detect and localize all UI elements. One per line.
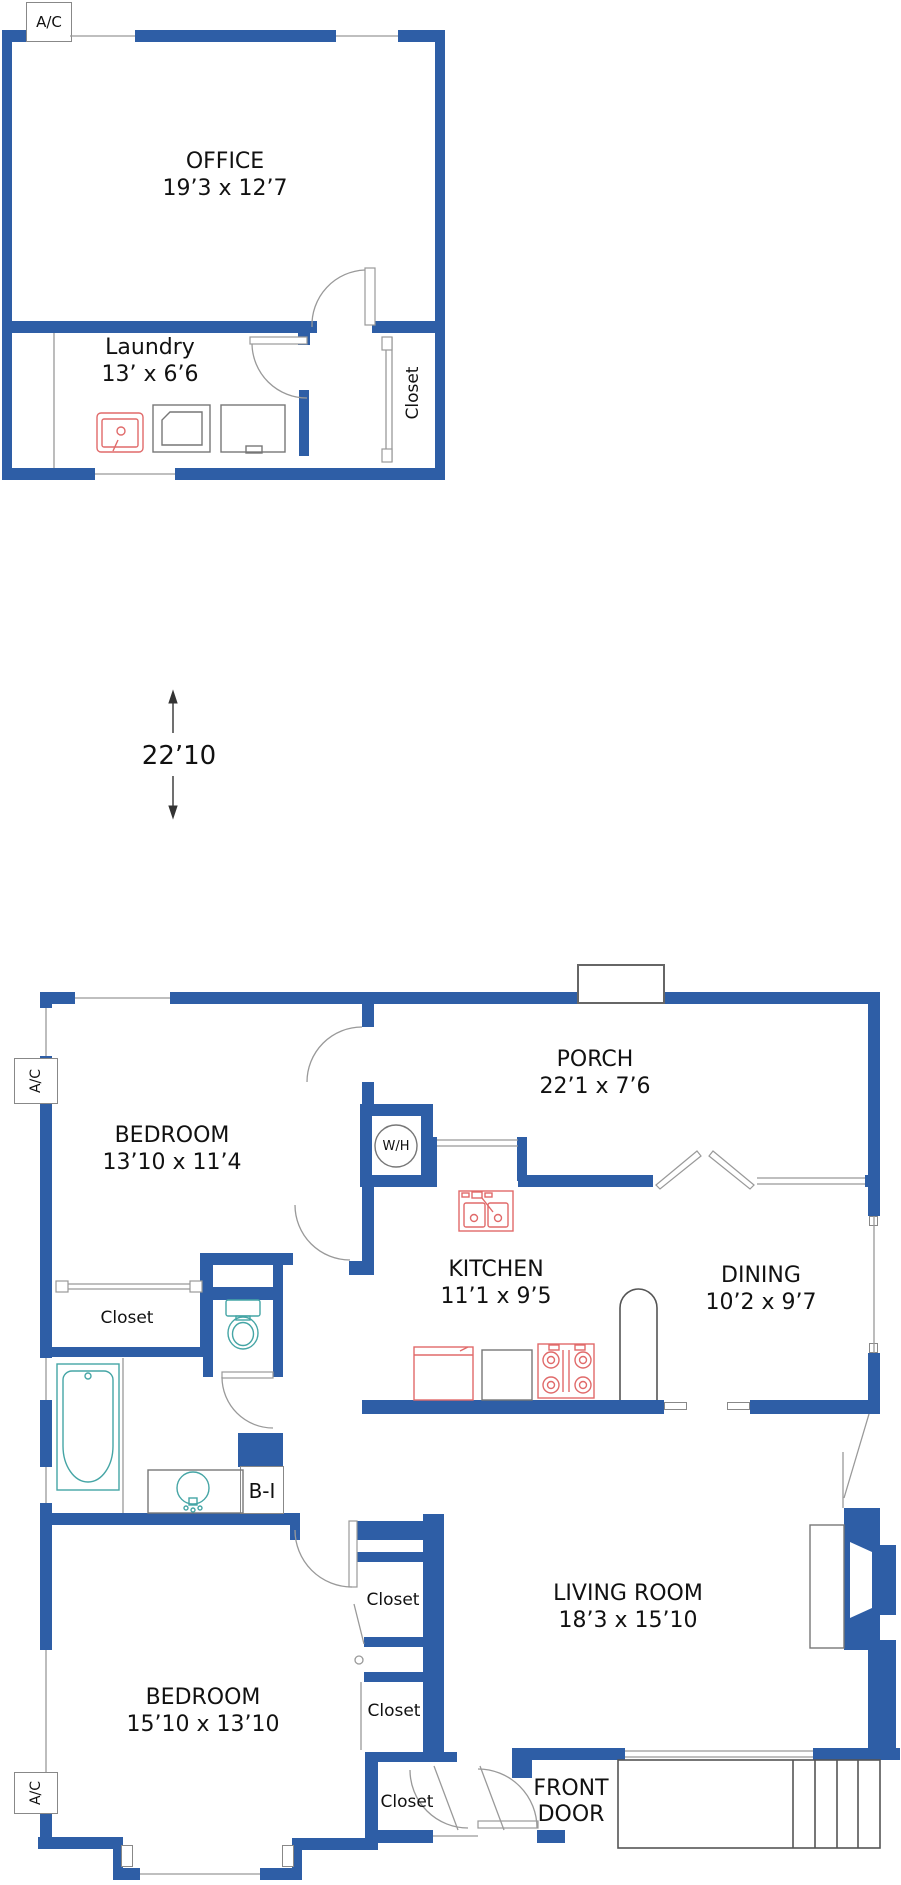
- room-name: BEDROOM: [28, 1684, 378, 1711]
- room-dims: 10’2 x 9’7: [636, 1289, 886, 1316]
- closet-sliding-door: [382, 337, 392, 462]
- room-label-laundry: Laundry 13’ x 6’6: [50, 334, 250, 389]
- room-dims: 19’3 x 12’7: [75, 175, 375, 202]
- bathroom-closet-slider: [56, 1281, 202, 1292]
- room-dims: 15’10 x 13’10: [28, 1711, 378, 1738]
- partition-lines: [54, 333, 843, 1513]
- closet-label: Closet: [367, 1792, 447, 1813]
- toilet-icon: [226, 1300, 260, 1349]
- room-dims: 13’10 x 11’4: [22, 1149, 322, 1176]
- french-doors: [656, 1151, 754, 1189]
- door-office: [312, 268, 375, 327]
- front-door-label: FRONT DOOR: [519, 1776, 623, 1828]
- bathtub-icon: [57, 1364, 119, 1490]
- counter: [482, 1350, 532, 1400]
- built-in-label: B-I: [241, 1479, 283, 1504]
- room-label-bedroom-bottom: BEDROOM 15’10 x 13’10: [28, 1684, 378, 1739]
- room-label-bedroom-top: BEDROOM 13’10 x 11’4: [22, 1122, 322, 1177]
- washer-icon: [153, 405, 210, 452]
- side-door: [844, 1414, 869, 1498]
- room-name: PORCH: [470, 1046, 720, 1073]
- room-label-porch: PORCH 22’1 x 7’6: [470, 1046, 720, 1101]
- door-water-closet: [222, 1372, 273, 1428]
- dimension-arrow-up: [169, 691, 177, 733]
- floor-plan: A/C: [0, 0, 901, 1885]
- stove-icon: [538, 1344, 594, 1398]
- door-laundry: [250, 337, 307, 398]
- room-name: OFFICE: [75, 148, 375, 175]
- room-dims: 22’1 x 7’6: [470, 1073, 720, 1100]
- room-name: KITCHEN: [371, 1256, 621, 1283]
- room-label-dining: DINING 10’2 x 9’7: [636, 1262, 886, 1317]
- room-name: BEDROOM: [22, 1122, 322, 1149]
- closet-label: Closet: [77, 1308, 177, 1329]
- laundry-sink-icon: [97, 413, 143, 452]
- room-label-living: LIVING ROOM 18’3 x 15’10: [478, 1580, 778, 1635]
- room-label-office: OFFICE 19’3 x 12’7: [75, 148, 375, 203]
- site-dimension-label: 22’10: [129, 740, 229, 772]
- kitchen-sink-icon: [459, 1191, 513, 1231]
- door-bedroom-top: [307, 1027, 362, 1082]
- vanity-sink-icon: [148, 1470, 243, 1513]
- water-heater-label: W/H: [374, 1139, 418, 1155]
- room-name: Laundry: [50, 334, 250, 361]
- fireplace-icon: [810, 1525, 872, 1648]
- closet-label: Closet: [403, 348, 423, 438]
- closet-label: Closet: [353, 1590, 433, 1611]
- room-name: DINING: [636, 1262, 886, 1289]
- dimension-arrow-down: [169, 776, 177, 818]
- door-hall-bedroom: [295, 1205, 350, 1260]
- room-dims: 11’1 x 9’5: [371, 1283, 621, 1310]
- room-dims: 18’3 x 15’10: [478, 1607, 778, 1634]
- dryer-icon: [221, 405, 285, 453]
- room-dims: 13’ x 6’6: [50, 361, 250, 388]
- front-steps: [618, 1760, 880, 1848]
- door-bathroom-hall: [295, 1521, 357, 1587]
- room-label-kitchen: KITCHEN 11’1 x 9’5: [371, 1256, 621, 1311]
- refrigerator-icon: [414, 1347, 473, 1400]
- room-name: LIVING ROOM: [478, 1580, 778, 1607]
